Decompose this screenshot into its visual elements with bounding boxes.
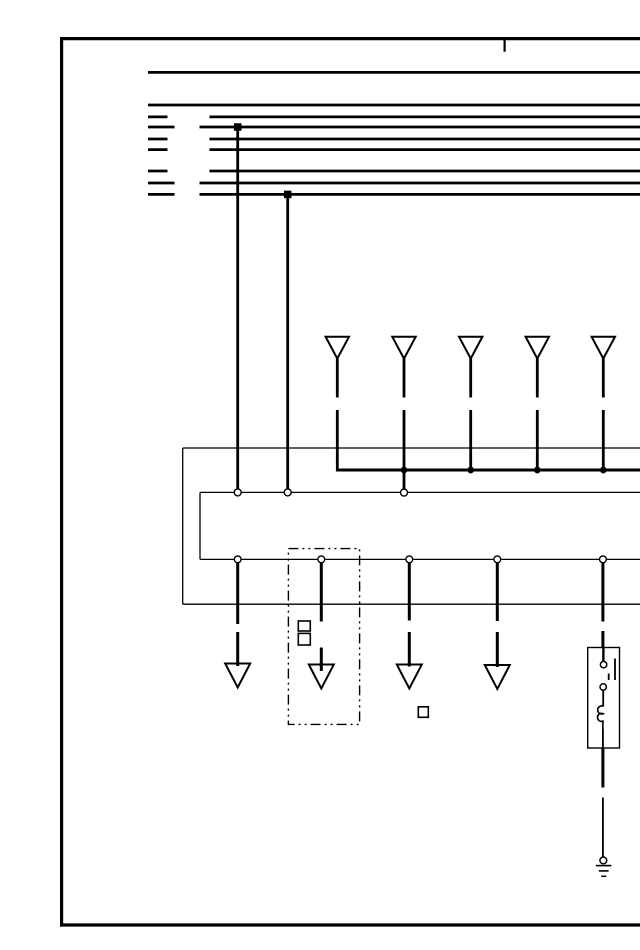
connector-arrow-1 <box>326 337 349 359</box>
pin-row1-2 <box>284 489 291 496</box>
pin-row2-4 <box>494 556 501 563</box>
pin-row2-5 <box>600 556 607 563</box>
pin-row2-2 <box>318 556 325 563</box>
ground-arrow-3 <box>397 665 422 689</box>
diagram-canvas <box>0 0 640 950</box>
connector-arrow-5 <box>592 337 615 359</box>
connector-arrow-3 <box>459 337 482 359</box>
junction-dot-bus-2 <box>468 467 474 473</box>
connector-arrow-2 <box>392 337 415 359</box>
ground-arrow-1 <box>225 664 250 688</box>
relay-coil <box>597 706 603 730</box>
relay-contact-bottom <box>600 684 606 690</box>
small-square-3 <box>418 707 428 718</box>
pin-row1-1 <box>234 489 241 496</box>
pin-row2-1 <box>234 556 241 563</box>
ground-terminal <box>600 857 607 864</box>
small-square-1 <box>298 621 310 631</box>
relay-contact-top <box>600 661 606 667</box>
pin-row2-3 <box>406 556 413 563</box>
ground-arrow-4 <box>485 665 510 689</box>
connector-arrow-4 <box>526 337 549 359</box>
schematic-page <box>0 0 640 950</box>
pin-row1-3 <box>401 489 408 496</box>
junction-dot-bus-1 <box>401 467 407 473</box>
junction-dot-bus-3 <box>534 467 540 473</box>
small-square-2 <box>298 633 310 645</box>
junction-dot-bus-4 <box>600 467 606 473</box>
